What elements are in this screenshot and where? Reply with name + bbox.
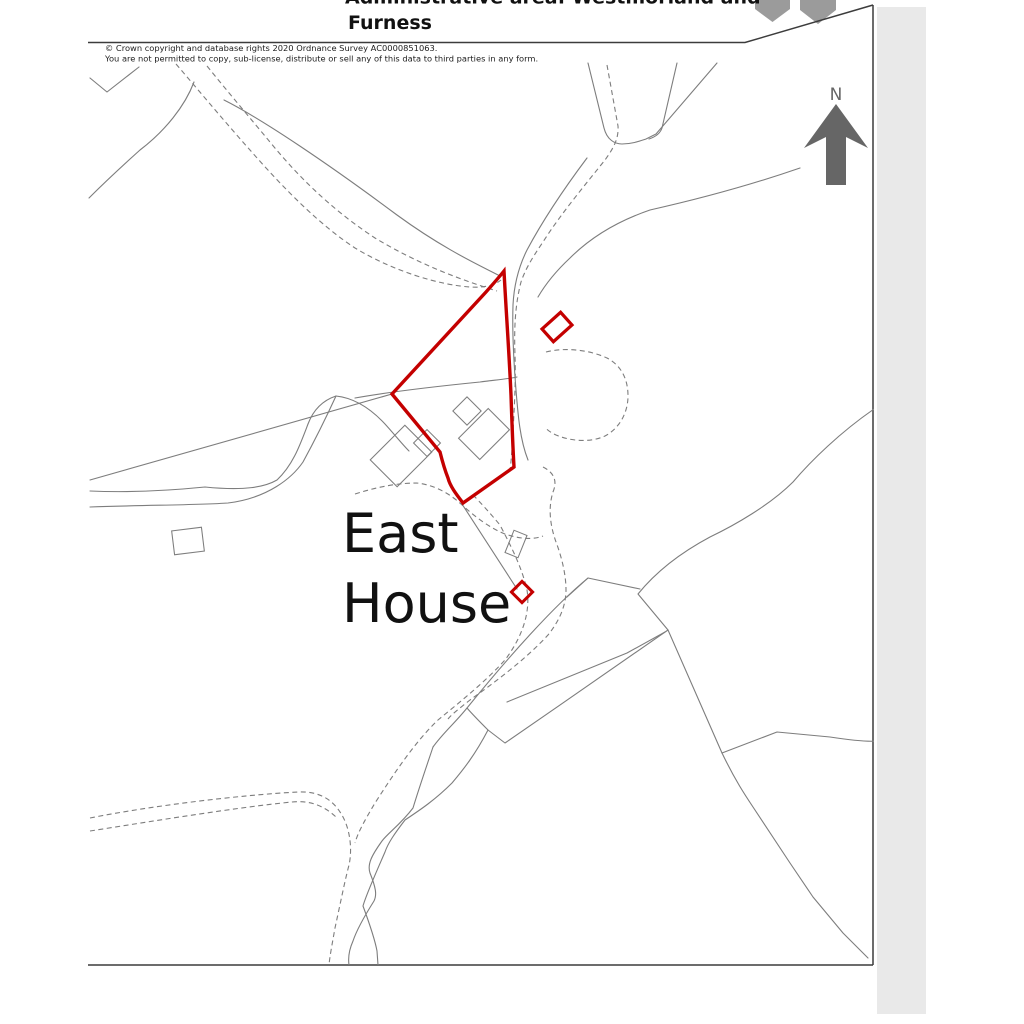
place-name-line1: East [342,502,459,565]
os-map-canvas: Administrative area: Westmorland and Fur… [0,0,1024,1024]
building-outline [414,430,441,457]
admin-area-line1: Administrative area: Westmorland and [345,0,761,9]
crest-logo-partial-icon [755,0,836,24]
building-outline [172,527,205,554]
map-feature-lines [89,63,877,965]
parcel-boundary-outbuilding [542,312,572,341]
place-name-label: East House [342,502,511,635]
north-arrow-icon: N [804,85,868,185]
building-outline [459,409,510,460]
copyright-line2: You are not permitted to copy, sub-licen… [104,54,538,64]
admin-area-line2: Furness [348,12,432,34]
copyright-note: © Crown copyright and database rights 20… [104,43,538,64]
north-label: N [830,85,843,105]
title-plan-page: Administrative area: Westmorland and Fur… [0,0,1024,1024]
place-name-line2: House [342,572,511,635]
building-outline [453,397,481,425]
map-border [88,5,873,965]
page-edge [877,7,926,1014]
building-outline [505,530,527,557]
copyright-line1: © Crown copyright and database rights 20… [105,43,437,53]
header-title-block: Administrative area: Westmorland and Fur… [345,0,761,34]
